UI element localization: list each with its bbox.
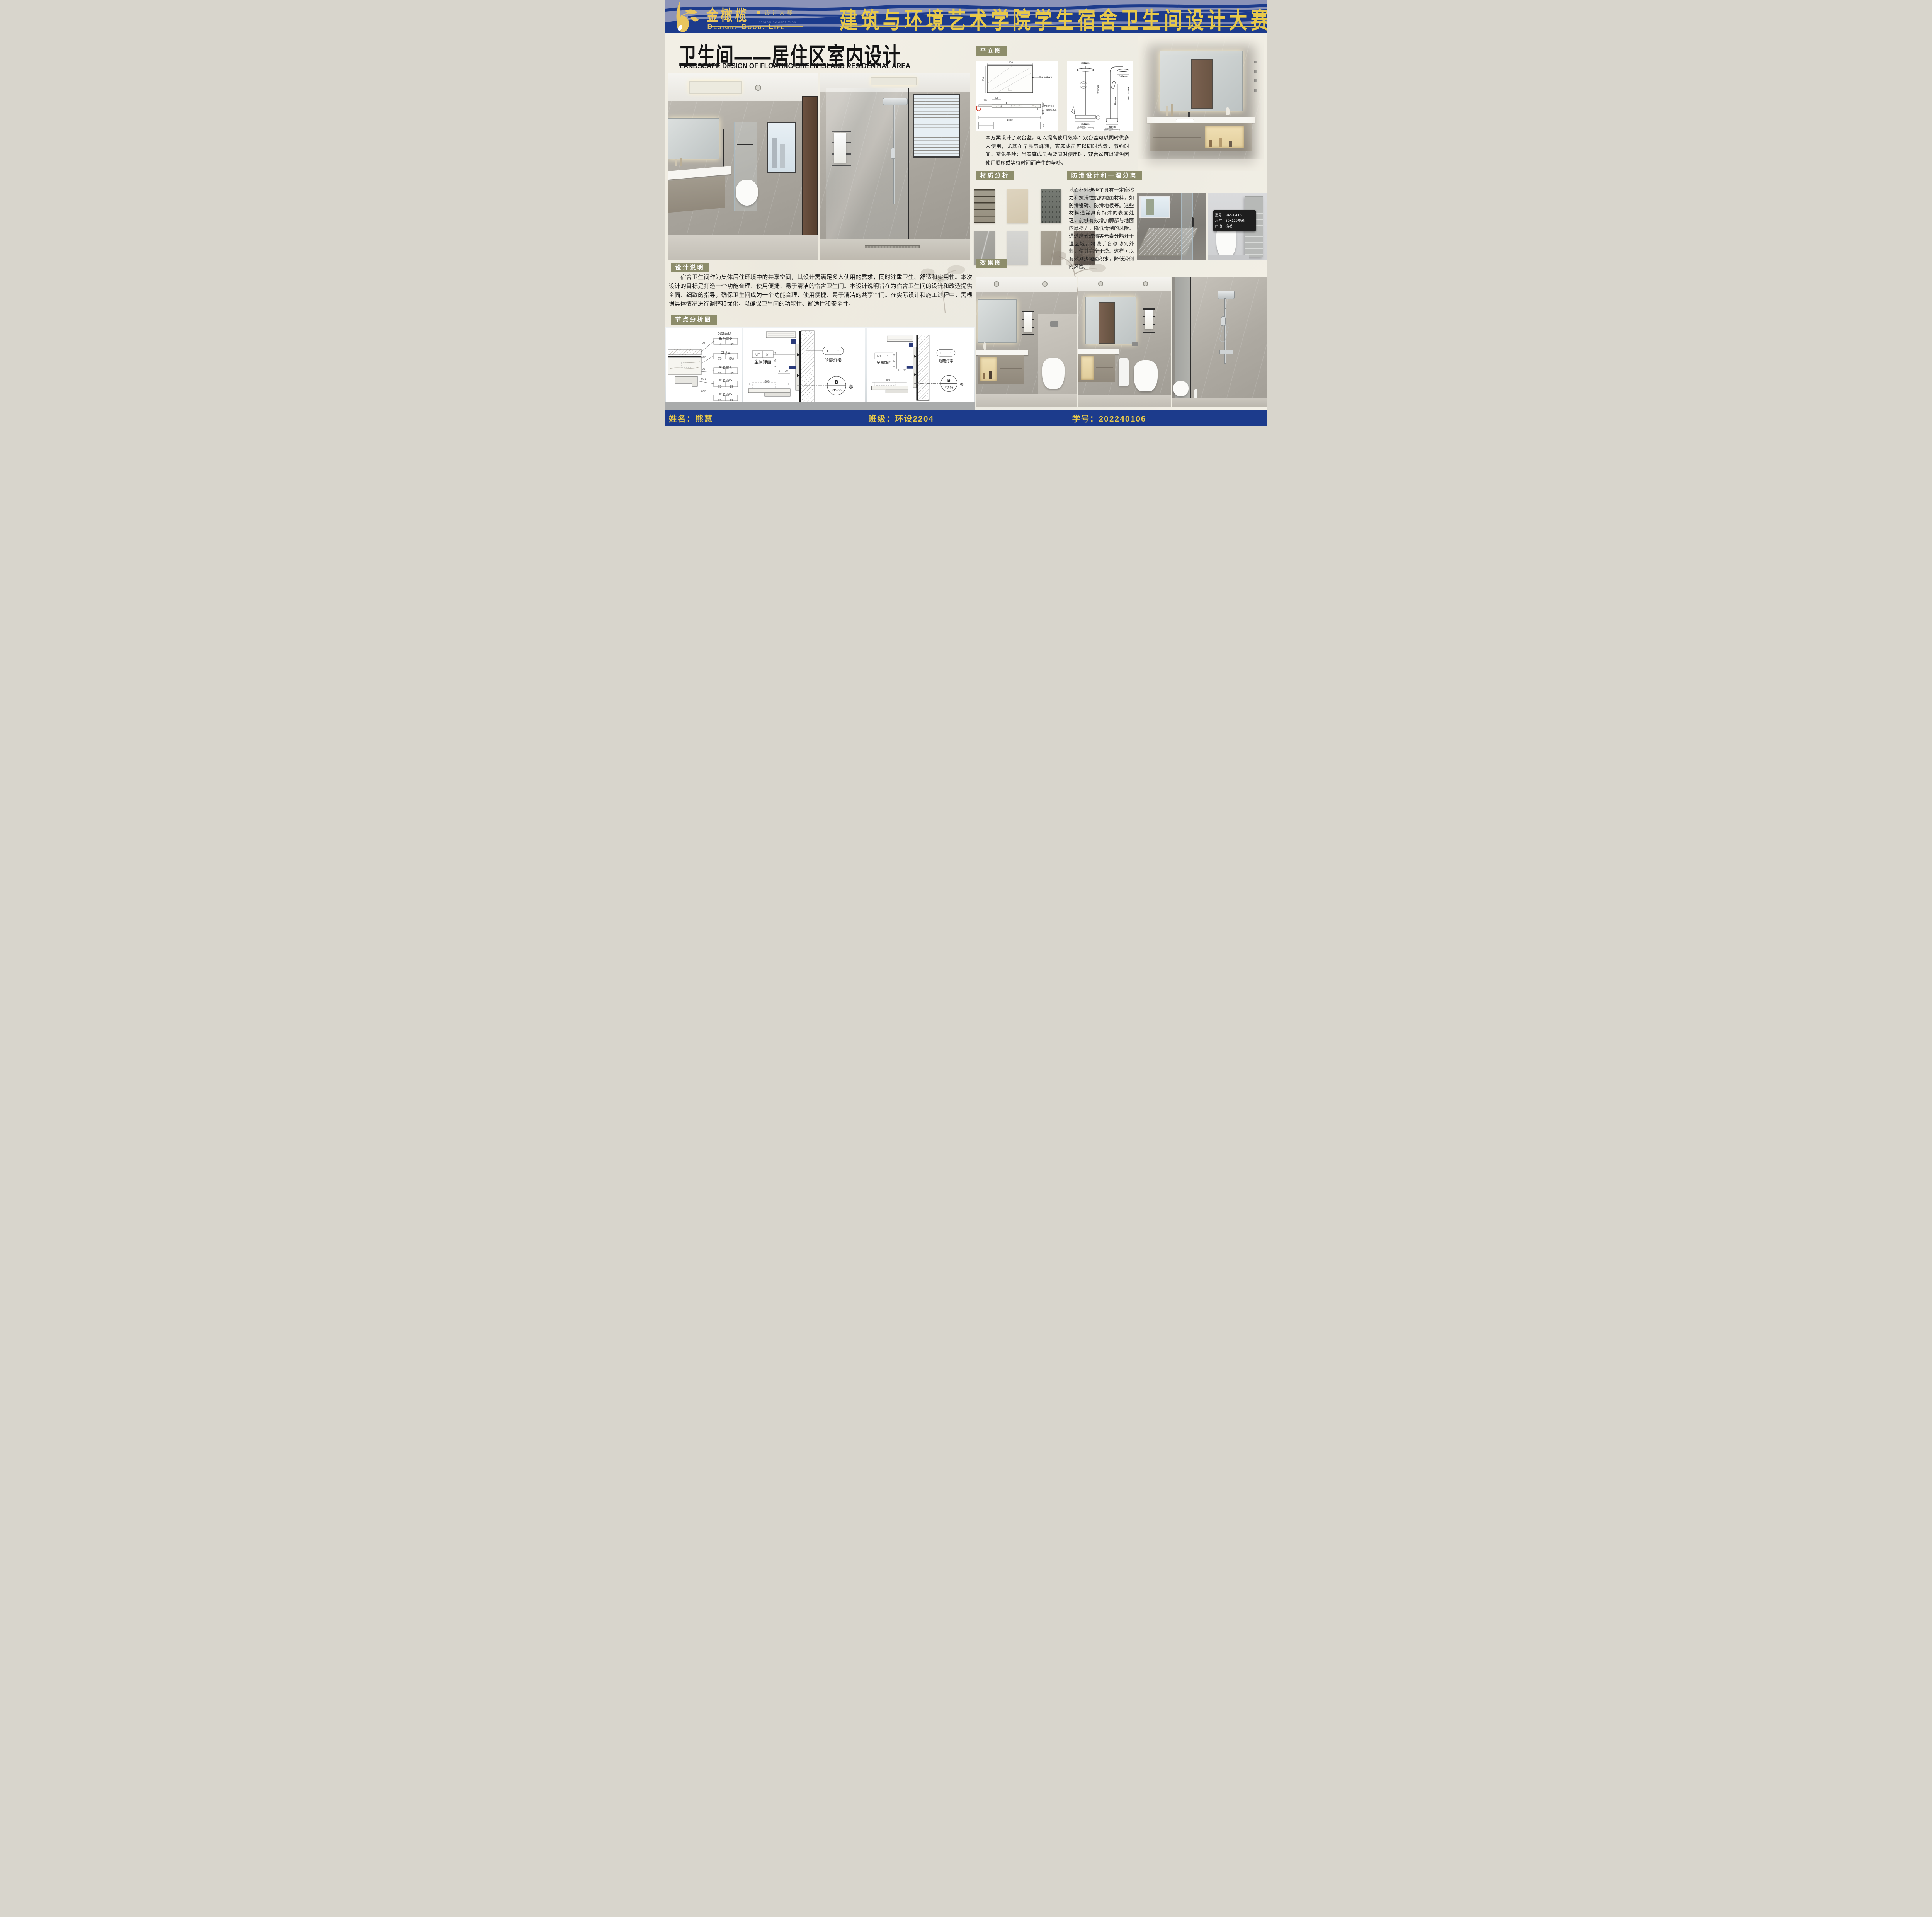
- render-vanity-mirror-image: [1138, 36, 1264, 171]
- svg-text:L: L: [940, 351, 942, 355]
- svg-text:(非数显款220mm): (非数显款220mm): [1077, 126, 1094, 129]
- section-label-design-notes: 设计说明: [671, 263, 709, 272]
- material-swatch-dark-dotted: [1041, 189, 1061, 223]
- bottle-decor-shape: [983, 373, 985, 379]
- towel-bar-shape: [1143, 308, 1155, 310]
- svg-text:260mm: 260mm: [1081, 62, 1090, 65]
- svg-text:90: 90: [702, 341, 705, 344]
- page-subtitle-english: LANDSCAPE DESIGN OF FLOATING GREEN ISLAN…: [680, 62, 911, 70]
- svg-text:石材饰面: 石材饰面: [719, 393, 732, 396]
- bottle-decor-shape: [1219, 138, 1222, 147]
- svg-text:90mm: 90mm: [1109, 126, 1116, 128]
- svg-text:15: 15: [774, 352, 776, 355]
- svg-text:ST: ST: [729, 384, 733, 388]
- wall-hung-toilet-shape: [1134, 360, 1158, 391]
- spotlight-shape: [755, 85, 761, 91]
- svg-text:黑色边框背光: 黑色边框背光: [1039, 76, 1053, 79]
- towel-bar-shape: [1022, 334, 1034, 335]
- svg-text:800-1100mm: 800-1100mm: [1128, 86, 1130, 100]
- mirror-shape: [978, 299, 1017, 343]
- svg-text:01: 01: [718, 342, 721, 345]
- svg-text:900: 900: [982, 77, 985, 81]
- ceiling-shape: [976, 277, 1077, 292]
- door-reflection-shape: [1099, 302, 1115, 344]
- wall-hung-toilet-shape: [1042, 358, 1065, 389]
- decor-vase-shape: [983, 342, 986, 350]
- svg-text:600: 600: [764, 380, 770, 383]
- svg-text:03: 03: [718, 398, 721, 402]
- section-label-effects: 效果图: [976, 259, 1007, 268]
- svg-text:金属饰面: 金属饰面: [754, 359, 771, 364]
- floor-shape: [1208, 255, 1249, 260]
- ceiling-light-panel-shape: [871, 77, 917, 85]
- towel-bar-shape: [737, 144, 753, 145]
- svg-text:50: 50: [774, 359, 776, 362]
- logo-subname: 设计大赛: [765, 9, 794, 17]
- open-shelf-niche-shape: [1081, 356, 1094, 380]
- drawer-line-shape: [1096, 367, 1113, 368]
- shower-hose-shape: [1219, 323, 1230, 342]
- svg-text:02: 02: [718, 357, 721, 360]
- wall-hook-shape: [1254, 70, 1257, 73]
- svg-text:5: 5: [774, 366, 776, 367]
- section-label-materials: 材质分析: [976, 171, 1014, 180]
- svg-text:(非数显款80mm): (非数显款80mm): [1104, 128, 1119, 131]
- vanity-cabinet-shape: [1150, 123, 1252, 151]
- svg-text:石材饰面: 石材饰面: [719, 379, 732, 383]
- flush-plate-shape: [1132, 342, 1138, 346]
- drain-grate-shape: [865, 245, 920, 248]
- glass-panel-shape: [1181, 193, 1193, 260]
- competition-title: 建筑与环境艺术学院学生宿舍卫生间设计大赛: [840, 1, 1266, 33]
- svg-text:L: L: [827, 349, 829, 354]
- logo-divider-line: [707, 20, 793, 20]
- logo-tagline: Design. Good. Life: [707, 23, 786, 31]
- effect-render-3-shower-image: [1172, 277, 1267, 407]
- bottom-gray-band: [665, 402, 975, 410]
- section-label-node-details: 节点分析图: [671, 315, 717, 325]
- node-detail-drawing-rotated: 90 250 10 150 200 灯带暗线 MT 01 WD 02 MT: [666, 328, 742, 406]
- footer-bar: 姓名：熊慧 班级：环设2204 学号：202240106: [665, 410, 1267, 426]
- drawer-line-shape: [1153, 137, 1201, 138]
- drawer-line-shape: [1000, 368, 1022, 369]
- floor-shape: [1172, 398, 1267, 407]
- svg-text:50: 50: [893, 359, 896, 362]
- shower-arm-shape: [1224, 298, 1226, 310]
- poster: 金橄榄 设计大赛 DESIGN COMPETITION Design. Good…: [665, 0, 1267, 426]
- antislip-tile-toilet-image: 型号：HFS12603 尺寸：60X120厘米 凹槽：横槽: [1208, 193, 1267, 260]
- svg-text:300: 300: [1043, 123, 1045, 128]
- open-shelf-niche-shape: [1205, 126, 1244, 148]
- svg-text:260mm: 260mm: [1097, 85, 1100, 94]
- door-reflection-shape: [1191, 59, 1213, 109]
- vanity-elevation-drawing: 1400 900 黑色边框背光 400 325 560: [976, 61, 1058, 131]
- toilet-shape: [736, 180, 758, 206]
- plan-section-description: 本方案设计了双台盆，可以提高使用效率：双台盆可以同时供多人使用，尤其在早晨高峰期…: [986, 134, 1129, 167]
- node-detail-drawing-light-cove-1: MT 01 金属饰面 L - 暗藏灯带 B YD-05 参 600 70 5: [743, 328, 865, 407]
- shower-shelf-shape: [1219, 350, 1234, 354]
- svg-text:参: 参: [849, 384, 853, 390]
- spec-size: 尺寸：60X120厘米: [1215, 218, 1254, 223]
- node-detail-drawing-light-cove-2: MT 01 金属饰面 L - 暗藏灯带 B YD-05 参 600 70 5 1…: [867, 328, 974, 407]
- door-shape: [802, 96, 818, 237]
- towel-bar-shape: [1143, 332, 1155, 333]
- competition-title-underline: [840, 26, 1265, 27]
- shower-glass-panel-shape: [826, 88, 909, 252]
- shower-fixture-drawing: 260mm 260mm 250mm (非数显款220mm) 260mm 780m…: [1067, 61, 1133, 131]
- svg-text:03: 03: [718, 384, 721, 388]
- city-silhouette-shape: [780, 144, 785, 167]
- ceiling-light-panel-shape: [689, 81, 742, 94]
- bottle-decor-shape: [675, 159, 677, 166]
- svg-text:5: 5: [893, 366, 896, 367]
- section-label-plan-elevation: 平立图: [976, 46, 1007, 56]
- flush-plate-shape: [1050, 321, 1058, 327]
- city-silhouette-shape: [772, 138, 777, 168]
- svg-text:15: 15: [893, 354, 896, 356]
- svg-text:250mm: 250mm: [1081, 123, 1090, 126]
- svg-text:暗藏灯带: 暗藏灯带: [938, 359, 953, 364]
- floor-shape: [1078, 395, 1171, 407]
- towel-bar-shape: [1022, 311, 1034, 312]
- soap-dispenser-shape: [1226, 107, 1230, 115]
- bottle-decor-shape: [1209, 140, 1212, 147]
- trash-bin-shape: [1119, 358, 1129, 386]
- svg-text:参: 参: [960, 383, 964, 387]
- glass-seal-strip-shape: [908, 88, 909, 252]
- spec-model: 型号：HFS12603: [1215, 213, 1254, 218]
- counter-shape: [1147, 117, 1255, 123]
- rain-shower-head-shape: [1218, 291, 1235, 299]
- svg-text:325: 325: [994, 97, 998, 99]
- svg-text:ST: ST: [729, 398, 733, 402]
- svg-text:MT: MT: [729, 371, 734, 375]
- render-shower-room-image: [820, 73, 970, 260]
- towel-shape: [1024, 312, 1032, 332]
- spotlight-shape: [1143, 281, 1148, 286]
- svg-text:YD-05: YD-05: [832, 388, 842, 392]
- svg-text:鱼肚白岩板: 鱼肚白岩板: [1044, 105, 1055, 108]
- tree-view-shape: [1146, 199, 1154, 215]
- logo-name-chinese: 金橄榄: [707, 3, 750, 25]
- floor-shape: [820, 239, 970, 260]
- effect-render-2-image: [1078, 277, 1171, 407]
- svg-text:暗藏灯带: 暗藏灯带: [825, 357, 842, 363]
- tile-spec-card: 型号：HFS12603 尺寸：60X120厘米 凹槽：横槽: [1213, 210, 1256, 231]
- svg-text:1845: 1845: [1007, 119, 1013, 121]
- logo-separator-dot: [757, 11, 760, 14]
- svg-text:150: 150: [701, 377, 706, 381]
- svg-text:三面倒斜边小: 三面倒斜边小: [1044, 109, 1057, 112]
- svg-text:01: 01: [765, 353, 769, 357]
- vanity-cabinet-shape: [668, 176, 725, 213]
- svg-text:金属饰面: 金属饰面: [876, 360, 891, 365]
- bottle-decor-shape: [1166, 106, 1168, 116]
- design-description: 宿舍卫生间作为集体居住环境中的共享空间，其设计需满足多人使用的需求，同时注重卫生…: [669, 273, 973, 308]
- svg-text:260mm: 260mm: [1119, 75, 1128, 78]
- student-name: 姓名：熊慧: [669, 413, 713, 424]
- svg-text:200: 200: [701, 390, 706, 393]
- floor-shape: [976, 394, 1077, 407]
- mirror-strip-shape: [668, 118, 719, 159]
- bottle-decor-shape: [680, 158, 682, 166]
- mirror-shape: [1085, 297, 1136, 344]
- render-bathroom-corridor-image: [668, 73, 818, 260]
- material-swatch-pale-gray: [1007, 231, 1028, 265]
- faucet-shape: [1188, 112, 1190, 117]
- svg-text:1400: 1400: [1007, 61, 1013, 64]
- bottle-decor-shape: [989, 371, 992, 379]
- svg-text:灯带暗线: 灯带暗线: [718, 331, 731, 335]
- glass-handle-shape: [1192, 217, 1194, 227]
- svg-text:木饰面: 木饰面: [720, 351, 730, 355]
- svg-text:70: 70: [785, 370, 788, 373]
- section-label-antislip: 防滑设计和干湿分离: [1067, 171, 1142, 180]
- svg-text:MT: MT: [729, 342, 734, 345]
- window-shape: [1139, 196, 1171, 218]
- svg-text:01: 01: [718, 371, 721, 375]
- svg-text:MT: MT: [755, 353, 760, 357]
- svg-text:金属饰面: 金属饰面: [719, 336, 732, 340]
- svg-text:250: 250: [701, 356, 706, 359]
- wall-hook-shape: [1254, 89, 1257, 92]
- counter-shape: [1078, 349, 1119, 354]
- svg-text:B: B: [835, 379, 838, 385]
- svg-text:70: 70: [903, 369, 906, 372]
- header-banner: 金橄榄 设计大赛 DESIGN COMPETITION Design. Good…: [665, 0, 1267, 33]
- window-shape: [767, 122, 796, 172]
- svg-text:-: -: [949, 351, 951, 355]
- ceiling-shape: [1078, 277, 1171, 291]
- svg-text:600: 600: [885, 379, 890, 381]
- svg-text:10: 10: [702, 367, 705, 371]
- svg-text:01: 01: [886, 355, 890, 358]
- wall-hook-shape: [1254, 61, 1257, 63]
- svg-text:780mm: 780mm: [1114, 97, 1117, 105]
- student-id: 学号：202240106: [1072, 413, 1146, 424]
- bottle-decor-shape: [1229, 141, 1232, 147]
- svg-text:YD-05: YD-05: [944, 386, 953, 390]
- floor-shape: [1138, 159, 1264, 171]
- svg-text:金属饰面: 金属饰面: [719, 366, 732, 369]
- golden-olive-logo-icon: [668, 0, 706, 33]
- mirror-shape: [1160, 51, 1243, 111]
- material-swatch-grooved-stone: [974, 189, 995, 223]
- open-shelf-niche-shape: [980, 357, 997, 381]
- vanity-cabinet-shape: [1078, 354, 1115, 383]
- svg-text:-: -: [837, 349, 838, 353]
- bottle-decor-shape: [1171, 104, 1173, 116]
- window-blinds-shape: [913, 94, 961, 158]
- material-swatch-cream-marble: [1007, 189, 1028, 223]
- svg-text:MT: MT: [877, 355, 881, 358]
- towel-shape: [1145, 310, 1152, 329]
- antislip-shower-floor-image: [1137, 193, 1206, 260]
- floor-shape: [668, 235, 818, 260]
- svg-text:5: 5: [898, 369, 899, 372]
- wall-hook-shape: [1254, 79, 1257, 82]
- effect-render-1-image: [976, 277, 1077, 407]
- basin-shape: [1176, 119, 1194, 122]
- svg-text:B: B: [947, 378, 950, 383]
- spotlight-shape: [994, 281, 999, 287]
- vanity-cabinet-shape: [978, 355, 1024, 384]
- spec-groove: 凹槽：横槽: [1215, 223, 1254, 229]
- counter-shape: [976, 350, 1028, 355]
- svg-text:WD: WD: [729, 357, 734, 360]
- student-class: 班级：环设2204: [869, 413, 934, 424]
- svg-text:5: 5: [779, 370, 780, 373]
- svg-text:400: 400: [983, 99, 987, 102]
